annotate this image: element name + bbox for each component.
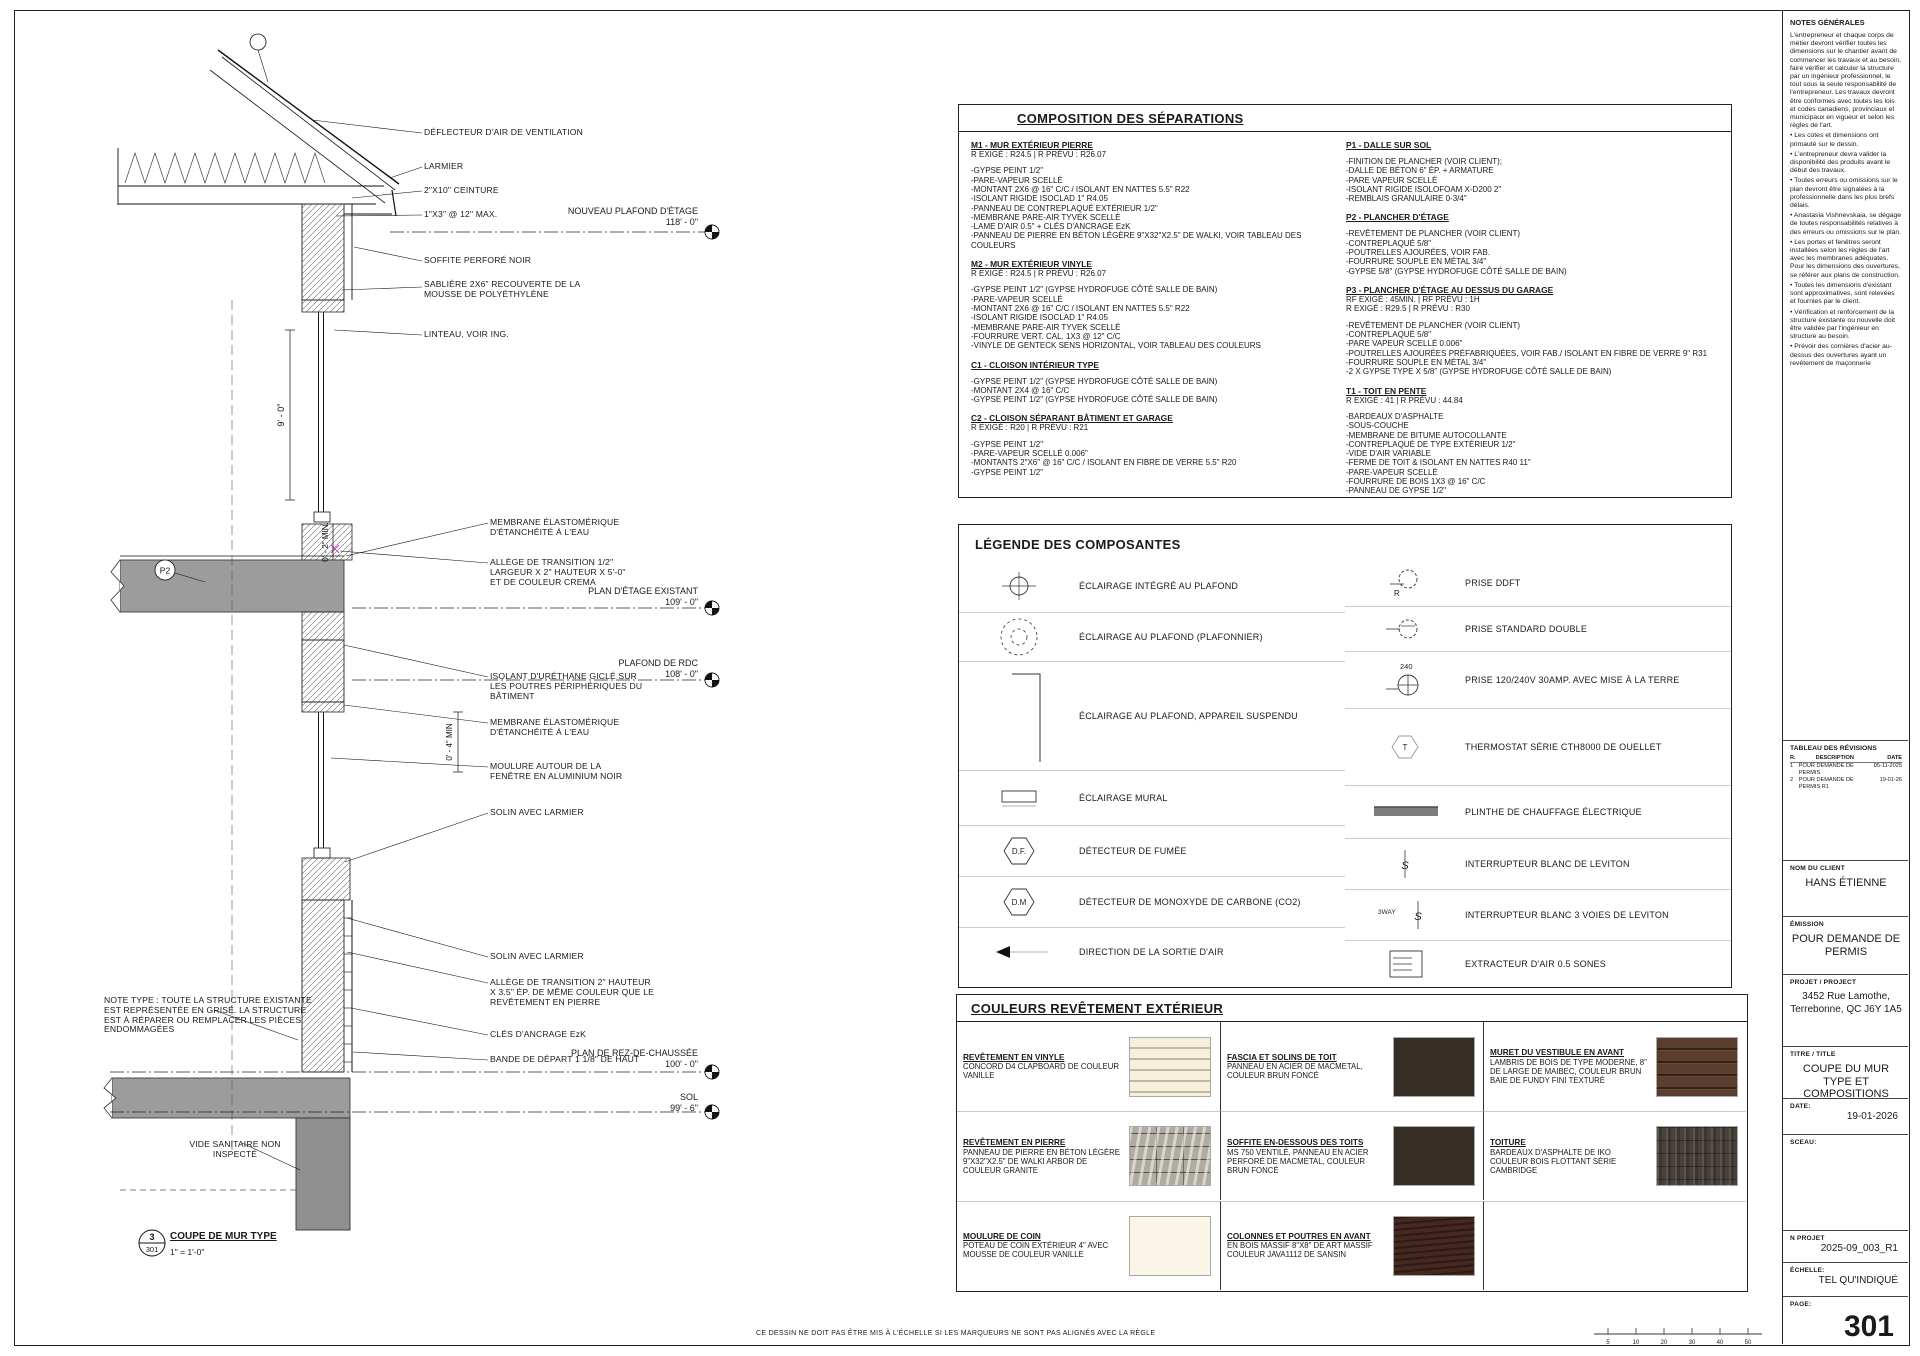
comp-line: -REVÊTEMENT DE PLANCHER (VOIR CLIENT) [1346,229,1721,238]
annotation-callout: MEMBRANE ÉLASTOMÉRIQUE D'ÉTANCHÉITÉ À L'… [490,718,640,738]
color-cell-colonnes: COLONNES ET POUTRES EN AVANTEN BOIS MASS… [1220,1201,1483,1290]
legend-col-left: ÉCLAIRAGE INTÉGRÉ AU PLAFOND ÉCLAIRAGE A… [959,560,1345,987]
comp-line: -VINYLE DE GENTECK SENS HORIZONTAL, VOIR… [971,341,1346,350]
note-paragraph: • Vérification et renforcement de la str… [1790,309,1902,342]
swatch-vinyle [1129,1037,1211,1097]
comp-line: -CONTREPLAQUÉ DE TYPE EXTÉRIEUR 1/2" [1346,440,1721,449]
detail-title: COUPE DE MUR TYPE [170,1231,277,1242]
comp-line: -PANNEAU DE CONTREPLAQUÉ EXTÉRIEUR 1/2" [971,204,1346,213]
ruler-label: 5 [1594,1340,1622,1346]
comp-section-p3: P3 - PLANCHER D'ÉTAGE AU DESSUS DU GARAG… [1346,285,1721,377]
switch-icon: S [1345,847,1465,881]
color-cell-fascia: FASCIA ET SOLINS DE TOITPANNEAU EN ACIER… [1220,1022,1483,1111]
swatch-fascia [1393,1037,1475,1097]
scale-block: ÉCHELLE: TEL QU'INDIQUÉ [1783,1262,1908,1296]
exterior-colors-panel: COULEURS REVÊTEMENT EXTÉRIEUR REVÊTEMENT… [956,994,1748,1292]
comp-line: -MONTANT 2X6 @ 16" C/C / ISOLANT EN NATT… [971,185,1346,194]
svg-text:S: S [1414,911,1422,923]
dim-0-4-min: 0' - 4" MIN [445,723,454,760]
swatch-soffite [1393,1126,1475,1186]
annotation-callout: SOFFITE PERFORÉ NOIR [424,256,574,266]
notes-title: NOTES GÉNÉRALES [1790,18,1902,27]
comp-line: -MEMBRANE PARE-AIR TYVEK SCELLÉ [971,323,1346,332]
note-paragraph: • Les portes et fenêtres seront installé… [1790,239,1902,280]
three-way-switch-icon: 3WAYS [1345,898,1465,932]
comp-line: -CONTREPLAQUÉ 5/8" [1346,330,1721,339]
annotation-callout: MOULURE AUTOUR DE LA FENÊTRE EN ALUMINIU… [490,762,630,782]
annotation-callout: LINTEAU, VOIR ING. [424,330,554,340]
dim-0-2-min: 0' - 2" MIN. [321,522,330,561]
note-paragraph: • Anastasia Vishnevskaia, se dégage de t… [1790,212,1902,237]
comp-line: -GYPSE PEINT 1/2" [971,440,1346,449]
comp-line: -GYPSE PEINT 1/2" [971,166,1346,175]
comp-line: -MONTANT 2X6 @ 16" C/C / ISOLANT EN NATT… [971,304,1346,313]
swatch-muret [1656,1037,1738,1097]
gfci-outlet-icon: R [1345,566,1465,600]
level-label: SOL99' - 6" [548,1092,698,1113]
level-label: PLAN D'ÉTAGE EXISTANT109' - 0" [548,586,698,607]
level-label: NOUVEAU PLAFOND D'ÉTAGE118' - 0" [548,206,698,227]
ruler-label: 20 [1650,1340,1678,1346]
annotation-callout: ALLÈGE DE TRANSITION 2" HAUTEUR X 3.5" É… [490,978,658,1007]
annotation-callout: 2"X10" CEINTURE [424,186,554,196]
comp-line: -PARE VAPEUR SCELLÉ [1346,176,1721,185]
legend-title: LÉGENDE DES COMPOSANTES [959,525,1731,552]
comp-line: -MEMBRANE DE BITUME AUTOCOLLANTE [1346,431,1721,440]
scale-value: TEL QU'INDIQUÉ [1790,1275,1902,1288]
color-cell-pierre: REVÊTEMENT EN PIERREPANNEAU DE PIERRE EN… [957,1111,1220,1200]
comp-line: -MONTANTS 2"X6" @ 16" C/C / ISOLANT EN F… [971,458,1346,467]
svg-text:D.M: D.M [1012,898,1027,907]
color-cell-muret: MURET DU VESTIBULE EN AVANTLAMBRIS DE BO… [1483,1022,1746,1111]
duplex-outlet-icon [1345,614,1465,644]
comp-line: -SOUS-COUCHE [1346,421,1721,430]
svg-text:T: T [1403,743,1408,752]
level-label: PLAFOND DE RDC108' - 0" [548,658,698,679]
dim-9-0: 9' - 0" [276,404,286,427]
compositions-col-right: P1 - DALLE SUR SOL -FINITION DE PLANCHER… [1346,140,1721,505]
foundation-wall [296,1118,350,1230]
svg-text:240: 240 [1400,662,1413,671]
exhaust-fan-icon [1345,947,1465,981]
date-block: DATE: 19-01-2026 [1783,1098,1908,1134]
drawing-sheet: 9' - 0" 0' - 2" MIN. 0' - 4" MIN P2 3 30… [0,0,1920,1356]
detail-bubble: 3 301 [139,1230,165,1256]
comp-line: -POUTRELLES AJOURÉES, VOIR FAB. [1346,248,1721,257]
comp-line: -DALLE DE BÉTON 6" ÉP. + ARMATURE [1346,166,1721,175]
comp-line: -GYPSE PEINT 1/2" [971,468,1346,477]
swatch-toiture [1656,1126,1738,1186]
comp-line: -FINITION DE PLANCHER (VOIR CLIENT); [1346,157,1721,166]
comp-line: -PARE-VAPEUR SCELLÉ [971,176,1346,185]
note-paragraph: L'entrepreneur et chaque corps de métier… [1790,32,1902,130]
thermostat-icon: T [1345,727,1465,767]
comp-line: -REVÊTEMENT DE PLANCHER (VOIR CLIENT) [1346,321,1721,330]
comp-line: -ISOLANT RIGIDE ISOCLAD 1" R4.05 [971,313,1346,322]
air-outlet-arrow-icon [959,942,1079,962]
suspended-light-icon [959,666,1079,766]
legend-col-right: R PRISE DDFT PRISE STANDARD DOUBLE 240 P… [1345,560,1731,987]
comp-section-p1: P1 - DALLE SUR SOL -FINITION DE PLANCHER… [1346,140,1721,203]
comp-line: -POUTRELLES AJOURÉES PRÉFABRIQUÉES, VOIR… [1346,349,1721,358]
compositions-panel: COMPOSITION DES SÉPARATIONS M1 - MUR EXT… [958,104,1732,498]
revision-row: 2 POUR DEMANDE DE PERMIS R1 19-01-26 [1790,777,1902,791]
page-block: PAGE: 301 [1783,1296,1908,1356]
comp-line: -MONTANT 2X4 @ 16" C/C [971,386,1346,395]
color-cell-soffite: SOFFITE EN-DESSOUS DES TOITSMS 750 VENTI… [1220,1111,1483,1200]
annotation-callout: MEMBRANE ÉLASTOMÉRIQUE D'ÉTANCHÉITÉ À L'… [490,518,625,538]
comp-line: -BARDEAUX D'ASPHALTE [1346,412,1721,421]
project-block: PROJET / PROJECT 3452 Rue Lamothe, Terre… [1783,974,1908,1046]
comp-line: -CONTREPLAQUÉ 5/8" [1346,239,1721,248]
client-block: NOM DU CLIENT HANS ÉTIENNE [1783,860,1908,916]
annotation-callout: ALLÈGE DE TRANSITION 1/2" LARGEUR X 2" H… [490,558,638,587]
level-label: PLAN DE REZ-DE-CHAUSSÉE100' - 0" [548,1048,698,1069]
detail-scale: 1" = 1'-0" [170,1247,204,1257]
annotation-callout: CLÉS D'ANCRAGE EzK [490,1030,630,1040]
co-detector-icon: D.M [959,881,1079,923]
comp-line: -FOURRURE VERT. CAL. 1X3 @ 12" C/C [971,332,1346,341]
footer-scale-ruler: 51020304050 [1594,1322,1762,1346]
colors-title: COULEURS REVÊTEMENT EXTÉRIEUR [971,1001,1223,1016]
comp-line: -2 X GYPSE TYPE X 5/8" (GYPSE HYDROFUGE … [1346,367,1721,376]
color-cell-moulure: MOULURE DE COINPOTEAU DE COIN EXTÉRIEUR … [957,1201,1220,1290]
revisions-table: TABLEAU DES RÉVISIONS R. DESCRIPTION DAT… [1783,740,1908,860]
note-paragraph: • L'entrepreneur devra valider la dispon… [1790,151,1902,176]
comp-line: -PARE-VAPEUR SCELLÉ [1346,468,1721,477]
date-value: 19-01-2026 [1790,1111,1902,1124]
note-paragraph: • Toutes les dimensions d'existant sont … [1790,282,1902,307]
annotation-callout: VIDE SANITAIRE NON INSPECTÉ [176,1140,294,1160]
legend-panel: LÉGENDE DES COMPOSANTES ÉCLAIRAGE INTÉGR… [958,524,1732,988]
annotation-callout: SOLIN AVEC LARMIER [490,952,620,962]
annotation-callout: SABLIÈRE 2X6" RECOUVERTE DE LA MOUSSE DE… [424,280,582,300]
comp-line: -MEMBRANE PARE-AIR TYVEK SCELLÉ [971,213,1346,222]
svg-text:S: S [1401,860,1409,872]
color-cell-empty [1483,1201,1746,1290]
svg-text:3WAY: 3WAY [1378,909,1396,916]
footer-note: CE DESSIN NE DOIT PAS ÊTRE MIS À L'ÉCHEL… [756,1330,1155,1337]
svg-text:3: 3 [149,1232,154,1242]
page-number: 301 [1790,1310,1902,1344]
comp-section-m1: M1 - MUR EXTÉRIEUR PIERRE R EXIGÉ : R24.… [971,140,1346,250]
ruler-label: 50 [1734,1340,1762,1346]
sheet-title: COUPE DU MUR TYPE ET COMPOSITIONS [1790,1063,1902,1101]
comp-line: -ISOLANT RIGIDE ISOLOFOAM X-D200 2" [1346,185,1721,194]
comp-line: -FERME DE TOIT & ISOLANT EN NATTES R40 1… [1346,458,1721,467]
ruler-label: 10 [1622,1340,1650,1346]
comp-line: -GYPSE PEINT 1/2" (GYPSE HYDROFUGE CÔTÉ … [971,377,1346,386]
stone-wall [302,900,344,1072]
recessed-light-icon [959,568,1079,604]
comp-line: -GYPSE 5/8" (GYPSE HYDROFUGE CÔTÉ SALLE … [1346,267,1721,276]
svg-text:301: 301 [146,1245,159,1254]
ruler-label: 40 [1706,1340,1734,1346]
annotation-callout: SOLIN AVEC LARMIER [490,808,620,818]
comp-section-t1: T1 - TOIT EN PENTE R EXIGÉ : 41 | R PRÉV… [1346,386,1721,496]
general-notes: L'entrepreneur et chaque corps de métier… [1790,32,1902,368]
wall-assembly [104,204,352,1230]
comp-line: -FOURRURE SOUPLE EN MÉTAL 3/4" [1346,257,1721,266]
annotation-note-type: NOTE TYPE : TOUTE LA STRUCTURE EXISTANTE… [104,996,316,1035]
svg-text:P2: P2 [160,566,171,576]
datum-symbols [705,225,719,1119]
comp-line: -VIDE D'AIR VARIABLE [1346,449,1721,458]
sheet-title-block: TITRE / TITLE COUPE DU MUR TYPE ET COMPO… [1783,1046,1908,1098]
ceiling-light-icon [959,615,1079,659]
note-paragraph: • Les cotes et dimensions ont primauté s… [1790,132,1902,148]
revision-row: 1 POUR DEMANDE DE PERMIS 05-11-2025 [1790,763,1902,777]
svg-text:R: R [1394,589,1400,598]
title-block: NOTES GÉNÉRALES L'entrepreneur et chaque… [1783,10,1908,1344]
client-name: HANS ÉTIENNE [1790,877,1902,890]
baseboard-heater-icon [1345,804,1465,820]
annotation-callout: 1"X3" @ 12" MAX. [424,210,554,220]
project-number-block: N PROJET 2025-09_003_R1 [1783,1230,1908,1262]
project-number: 2025-09_003_R1 [1790,1243,1902,1256]
note-paragraph: • Toutes erreurs ou omissions sur le pla… [1790,177,1902,210]
comp-line: -PARE-VAPEUR SCELLÉ [971,295,1346,304]
comp-line: -LAME D'AIR 0.5" + CLÉS D'ANCRAGE EzK [971,222,1346,231]
comp-section-c2: C2 - CLOISON SÉPARANT BÂTIMENT ET GARAGE… [971,413,1346,477]
roof-insulation-batt [125,153,325,183]
comp-section-m2: M2 - MUR EXTÉRIEUR VINYLE R EXIGÉ : R24.… [971,259,1346,350]
note-paragraph: • Prévoir des cornières d'acier au-dessu… [1790,343,1902,368]
range-outlet-icon: 240 [1345,657,1465,703]
comp-line: -PARE-VAPEUR SCELLÉ 0.006" [971,449,1346,458]
comp-line: -PANNEAU DE PIERRE EN BÉTON LÉGÈRE 9"X32… [971,231,1346,250]
comp-line: -ISOLANT RIGIDE ISOCLAD 1" R4.05 [971,194,1346,203]
smoke-detector-icon: D.F. [959,830,1079,872]
comp-line: -GYPSE PEINT 1/2" (GYPSE HYDROFUGE CÔTÉ … [971,285,1346,294]
swatch-colonnes [1393,1216,1475,1276]
color-cell-vinyle: REVÊTEMENT EN VINYLECONCORD D4 CLAPBOARD… [957,1022,1220,1111]
compositions-col-left: M1 - MUR EXTÉRIEUR PIERRE R EXIGÉ : R24.… [971,140,1346,505]
ruler-label: 30 [1678,1340,1706,1346]
comp-line: -PARE VAPEUR SCELLÉ 0.006" [1346,339,1721,348]
comp-line: -PANNEAU DE GYPSE 1/2" [1346,486,1721,495]
comp-line: -REMBLAIS GRANULAIRE 0-3/4" [1346,194,1721,203]
comp-line: -FOURRURE DE BOIS 1X3 @ 16" C/C [1346,477,1721,486]
color-cell-toiture: TOITUREBARDEAUX D'ASPHALTE DE IKO COULEU… [1483,1111,1746,1200]
comp-line: -FOURRURE SOUPLE EN MÉTAL 3/4" [1346,358,1721,367]
comp-section-p2: P2 - PLANCHER D'ÉTAGE -REVÊTEMENT DE PLA… [1346,212,1721,275]
swatch-moulure [1129,1216,1211,1276]
svg-text:D.F.: D.F. [1012,847,1026,856]
emission-value: POUR DEMANDE DE PERMIS [1790,933,1902,958]
seal-block: SCEAU: [1783,1134,1908,1230]
annotation-callout: LARMIER [424,162,534,172]
project-address: 3452 Rue Lamothe, Terrebonne, QC J6Y 1A5 [1790,991,1902,1016]
wall-light-icon [959,783,1079,813]
annotation-callout: DÉFLECTEUR D'AIR DE VENTILATION [424,128,599,138]
comp-section-c1: C1 - CLOISON INTÉRIEUR TYPE -GYPSE PEINT… [971,360,1346,405]
swatch-pierre [1129,1126,1211,1186]
emission-block: ÉMISSION POUR DEMANDE DE PERMIS [1783,916,1908,974]
compositions-title: COMPOSITION DES SÉPARATIONS [1017,111,1243,126]
comp-line: -GYPSE PEINT 1/2" (GYPSE HYDROFUGE CÔTÉ … [971,395,1346,404]
